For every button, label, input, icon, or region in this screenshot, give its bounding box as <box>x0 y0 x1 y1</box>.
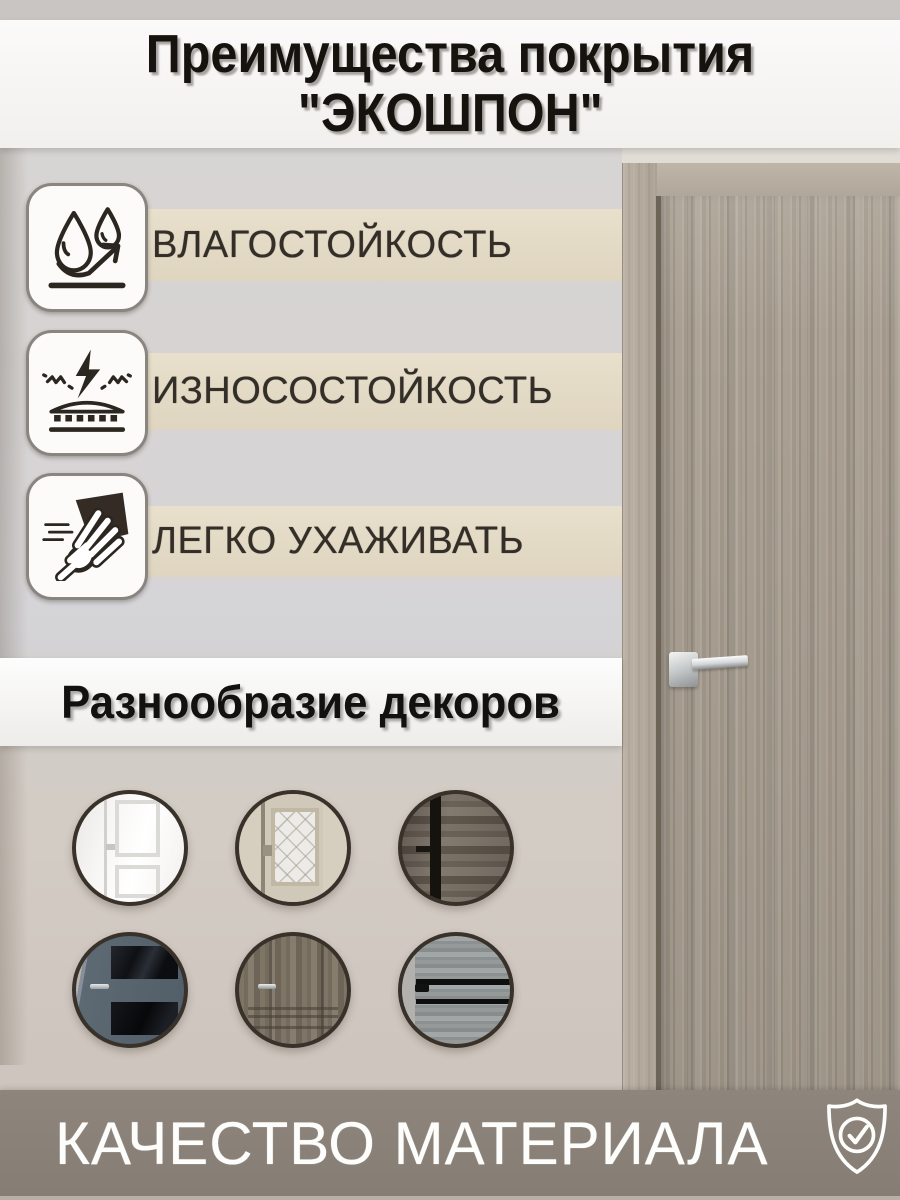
black-handle <box>416 846 431 852</box>
black-handle <box>415 984 429 993</box>
decors-title: Разнообразие декоров <box>62 675 561 729</box>
water-drops-icon <box>40 198 134 297</box>
black-insert-strip <box>416 999 510 1004</box>
impact-surface-icon <box>40 344 134 443</box>
decor-light-gray-wood-black-inserts <box>398 932 514 1048</box>
door-handle <box>666 649 756 691</box>
door-frame-left <box>622 163 657 1200</box>
wear-icon-card <box>26 330 148 456</box>
door-photo <box>661 196 900 1200</box>
door-edge-line <box>402 936 415 1044</box>
door-panel <box>115 800 160 856</box>
black-edge-strip <box>430 794 441 902</box>
title-banner: Преимущества покрытия "ЭКОШПОН" <box>0 20 900 148</box>
panel-seam <box>248 1007 339 1010</box>
shield-check-icon <box>824 1097 890 1189</box>
door-panel <box>115 865 160 897</box>
feature-label: ЛЕГКО УХАЖИВАТЬ <box>152 506 524 577</box>
bottom-edge-strip <box>0 1196 900 1200</box>
panel-seam <box>248 1015 339 1018</box>
chrome-handle <box>90 984 109 989</box>
feature-strip-wear: ИЗНОСОСТОЙКОСТЬ <box>130 353 622 430</box>
title-line-1: Преимущества покрытия <box>146 25 754 84</box>
decor-white-classic-panel-door <box>72 790 188 906</box>
handle-lever <box>692 655 749 670</box>
promo-infographic: Преимущества покрытия "ЭКОШПОН" ВЛАГОСТО… <box>0 0 900 1200</box>
feature-label: ВЛАГОСТОЙКОСТЬ <box>152 209 512 281</box>
black-insert-strip <box>416 979 510 984</box>
door-knob <box>263 845 272 856</box>
wiping-hand-icon <box>40 487 134 586</box>
decors-banner: Разнообразие декоров <box>0 658 622 746</box>
title-line-2: "ЭКОШПОН" <box>298 84 603 143</box>
wall-corner-shade <box>0 140 28 1065</box>
decor-ivory-door-patterned-glass <box>235 790 351 906</box>
door-frame-top <box>622 163 900 198</box>
moisture-icon-card <box>26 183 148 312</box>
footer-label: КАЧЕСТВО МАТЕРИАЛА <box>55 1090 769 1196</box>
decor-gray-brown-panel-door <box>235 932 351 1048</box>
panel-seam <box>248 1026 339 1029</box>
feature-strip-care: ЛЕГКО УХАЖИВАТЬ <box>130 506 622 577</box>
decor-blue-gray-door-dark-glass <box>72 932 188 1048</box>
wall-top-strip <box>0 0 900 20</box>
care-icon-card <box>26 473 148 600</box>
patterned-glass <box>271 808 319 886</box>
feature-label: ИЗНОСОСТОЙКОСТЬ <box>152 353 553 430</box>
feature-strip-moisture: ВЛАГОСТОЙКОСТЬ <box>130 209 622 281</box>
decor-rustic-dark-wood <box>398 790 514 906</box>
dark-glass-panel <box>111 1002 178 1035</box>
dark-glass-panel <box>111 946 178 979</box>
chrome-handle <box>258 984 275 989</box>
door-knob <box>106 844 115 850</box>
footer-banner: КАЧЕСТВО МАТЕРИАЛА <box>0 1090 900 1196</box>
